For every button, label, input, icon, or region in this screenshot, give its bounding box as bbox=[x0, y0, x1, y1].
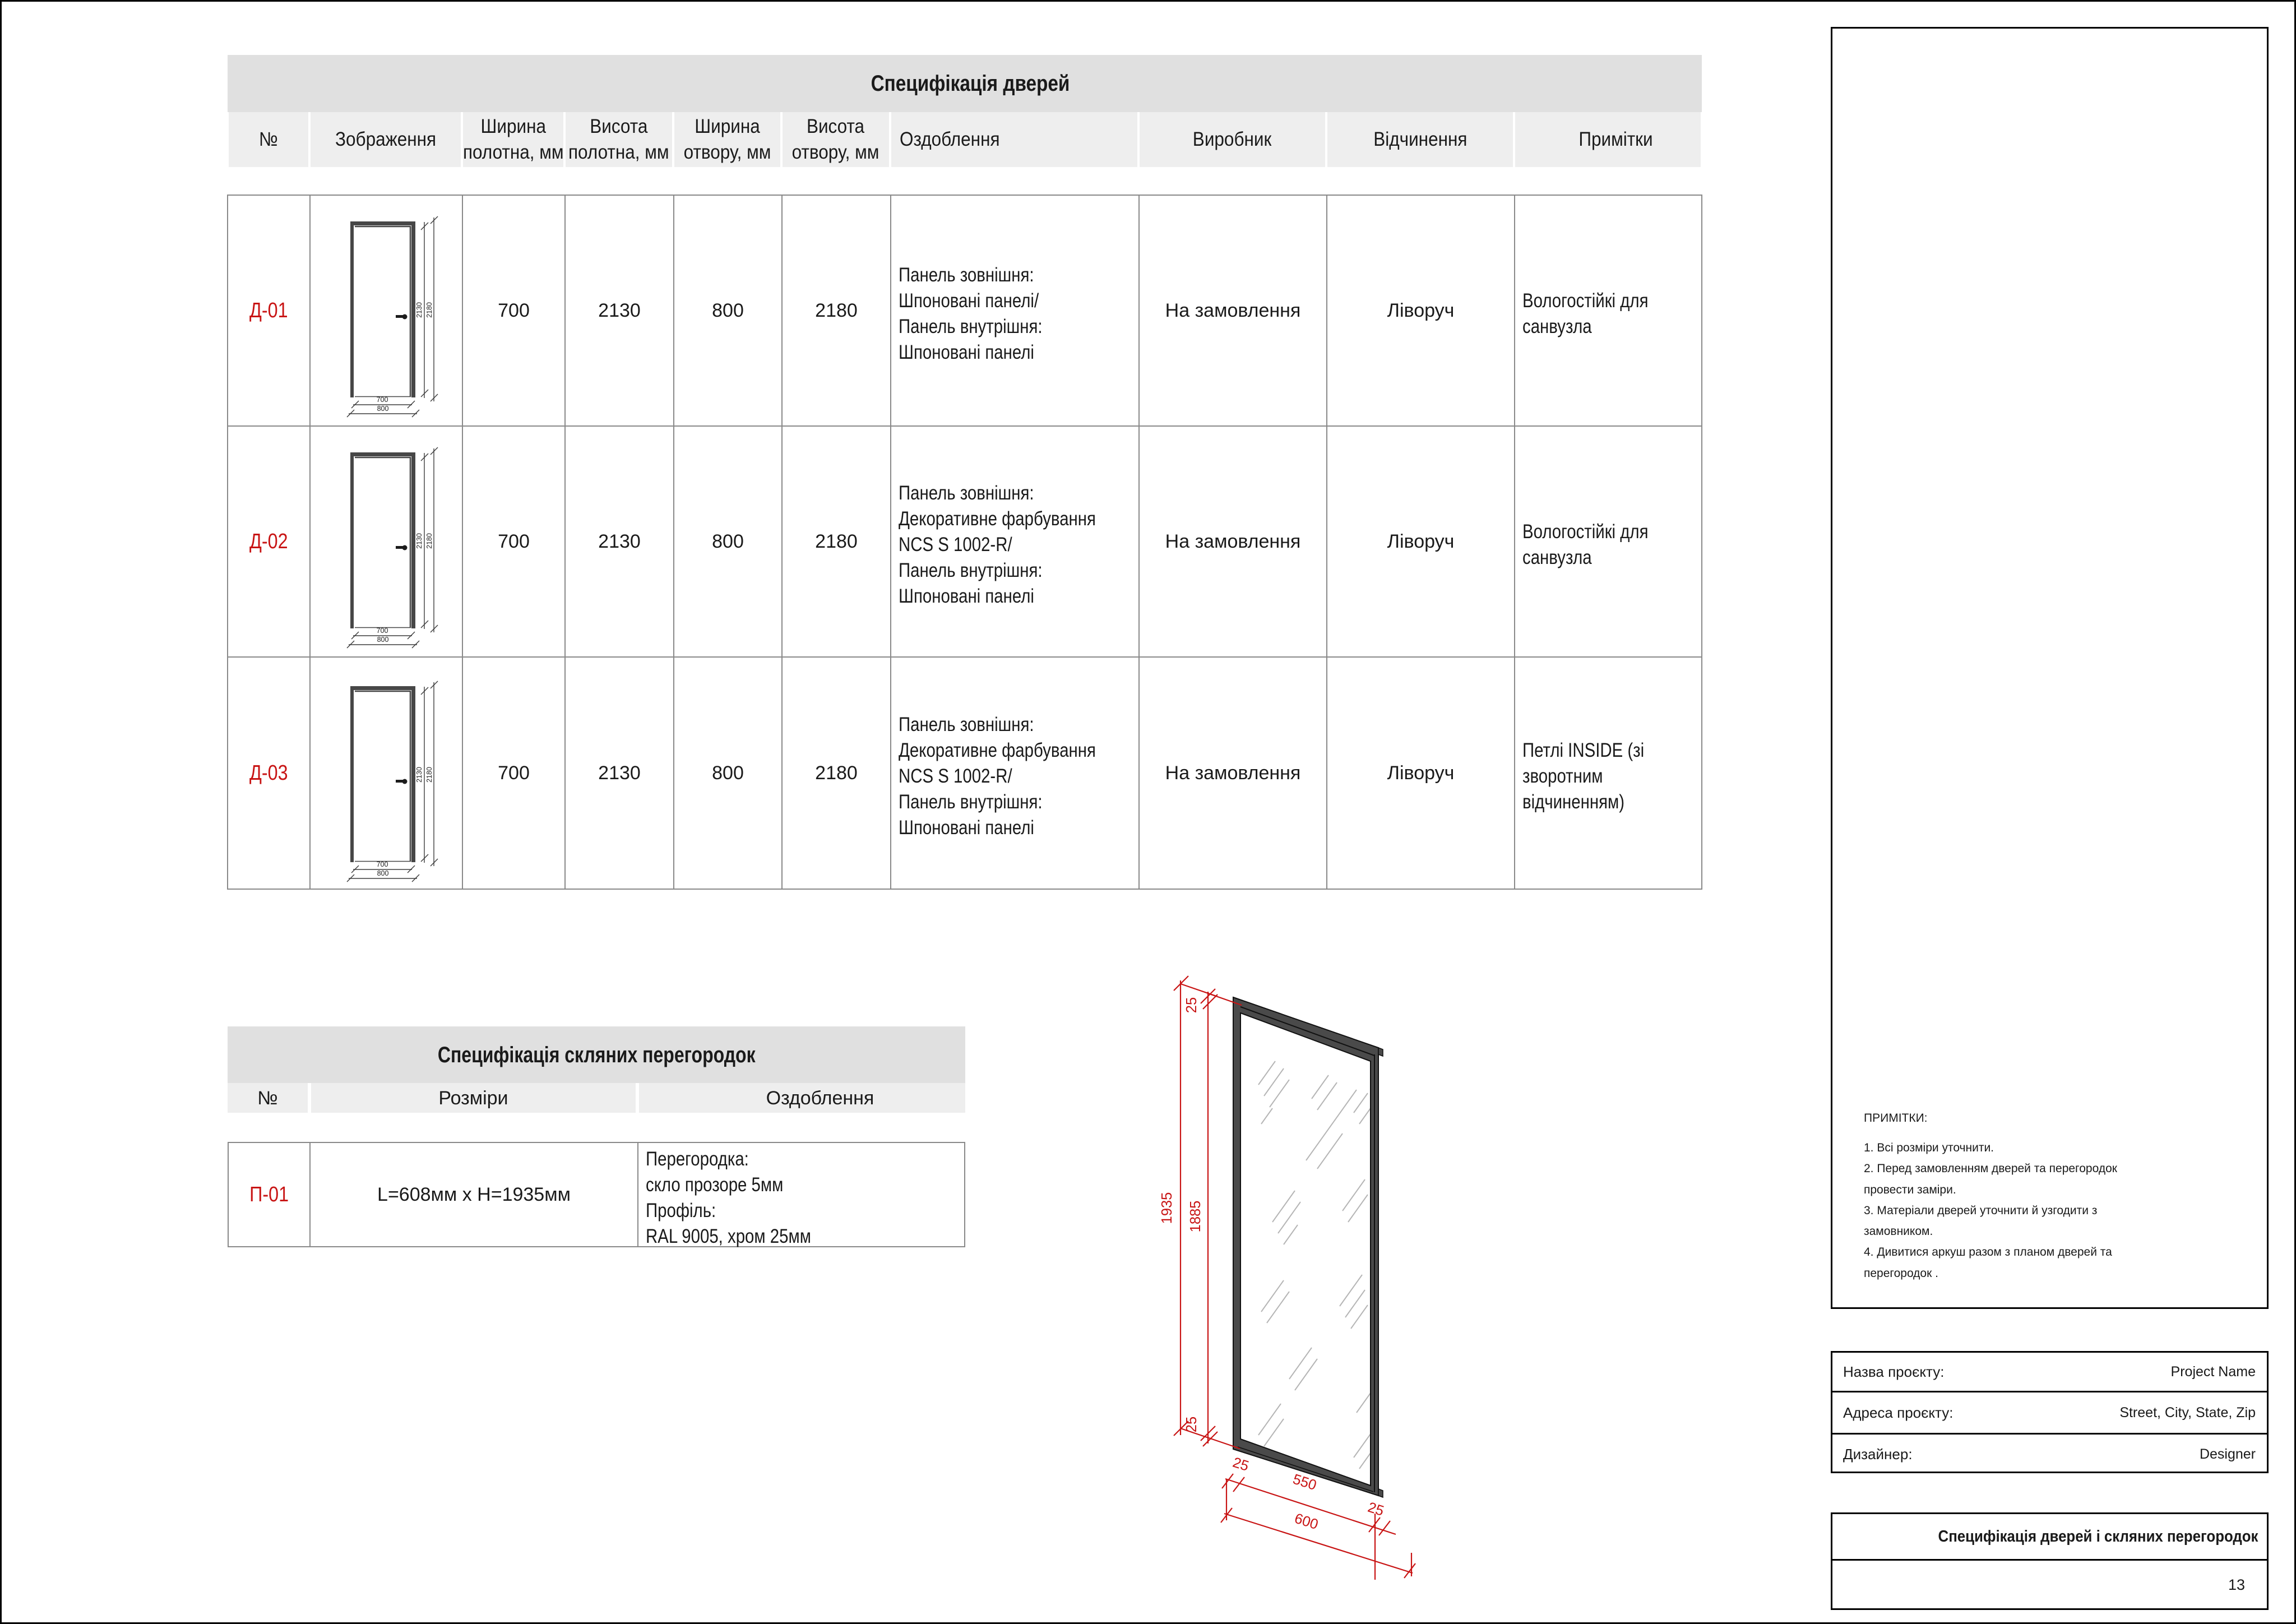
svg-text:25: 25 bbox=[1184, 1417, 1200, 1432]
svg-text:25: 25 bbox=[1366, 1500, 1386, 1519]
svg-text:25: 25 bbox=[1184, 997, 1200, 1013]
svg-text:25: 25 bbox=[1231, 1455, 1251, 1474]
svg-text:1935: 1935 bbox=[1159, 1192, 1175, 1224]
svg-text:1885: 1885 bbox=[1188, 1201, 1203, 1233]
svg-text:600: 600 bbox=[1293, 1511, 1320, 1533]
